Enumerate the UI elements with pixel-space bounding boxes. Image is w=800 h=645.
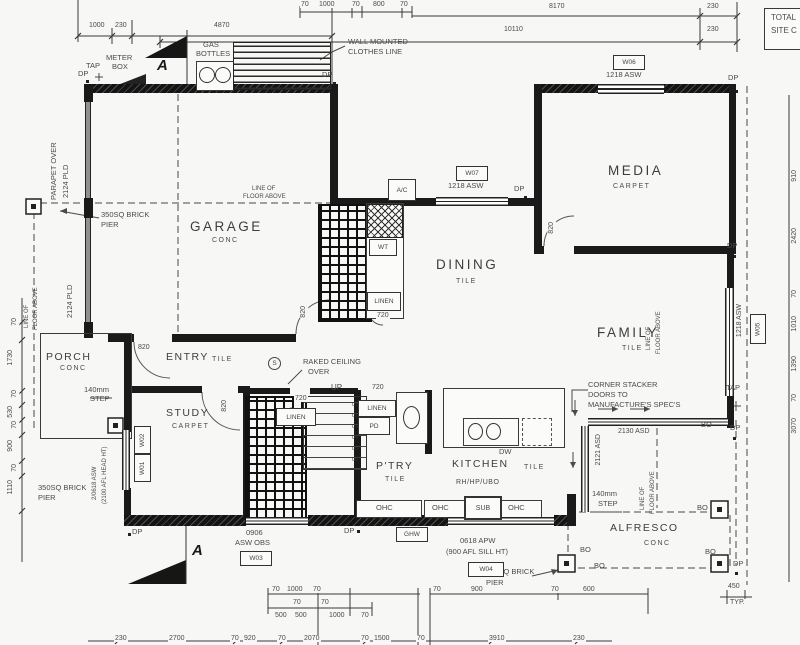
lofa-mid-1: LINE OF [252, 186, 275, 192]
dim-bb-5: 70 [360, 612, 370, 619]
plan-linework [0, 0, 800, 645]
smoke-alarm-symbol: S [268, 357, 281, 370]
stacker-doors-vertical [581, 426, 589, 512]
dim-left-7: 1110 [6, 480, 15, 495]
parapet-label-1: PARAPET OVER [50, 100, 58, 200]
tap-label-1: TAP [86, 62, 100, 70]
dim-top-8170: 8170 [548, 3, 566, 10]
ohc-label-3: OHC [508, 504, 525, 512]
dim-right-1: 2420 [790, 228, 799, 244]
door-820-media: 820 [547, 222, 556, 234]
section-marker-bottom: A [192, 543, 203, 559]
dim-left-0: 70 [10, 318, 19, 326]
kitchen-appliances: RH/HP/UBO [456, 479, 499, 486]
room-sub-kitchen: TILE [524, 464, 545, 471]
sub-label: SUB [464, 496, 502, 520]
dim-bc-10: 230 [572, 635, 586, 642]
wall-media-south [574, 246, 736, 254]
dw-label: DW [499, 448, 512, 456]
stacker-note-2: DOORS TO [588, 391, 628, 399]
clothesline-label-2: CLOTHES LINE [348, 48, 402, 56]
stacker-note-3: MANUFACTURE'S SPEC'S [588, 401, 680, 409]
dim-ba-0: 70 [271, 586, 281, 593]
dim-right-5: 70 [790, 394, 799, 402]
parapet-label-2: 2124 PLD [62, 112, 70, 198]
linen-lower: LINEN [276, 408, 316, 426]
clothesline-unit [233, 42, 331, 90]
dim-top-70b: 70 [351, 1, 361, 8]
w04-size: 0618 APW [460, 537, 495, 545]
dim-left-2: 70 [10, 390, 19, 398]
stacker-note-1: CORNER STACKER [588, 381, 657, 389]
dim-left-6: 70 [10, 464, 19, 472]
pier-label-2b: PIER [38, 494, 56, 502]
dim-bc-0: 230 [114, 635, 128, 642]
dim-right-6: 3070 [790, 418, 799, 434]
door-820-study: 820 [220, 400, 229, 412]
w03-type: ASW OBS [235, 539, 270, 547]
dim-top-1000: 1000 [88, 22, 106, 29]
dim-top-70c: 70 [399, 1, 409, 8]
pier-label-2a: 350SQ BRICK [38, 484, 86, 492]
dim-bc-4: 70 [277, 635, 287, 642]
room-sub-porch: CONC [60, 365, 87, 372]
pier-label-1b: PIER [101, 221, 119, 229]
dim-ba-4: 900 [470, 586, 484, 593]
room-sub-alfresco: CONC [644, 540, 671, 547]
dim-ba-3: 70 [432, 586, 442, 593]
dim-bb-2: 500 [294, 612, 308, 619]
lofa-family-1: LINE OF [646, 264, 652, 350]
dim-bc-8: 70 [416, 635, 426, 642]
door-820-garage: 820 [299, 306, 308, 318]
title-total: TOTAL [771, 14, 796, 22]
wall-west-corner [84, 84, 93, 102]
dim-bc-2: 70 [230, 635, 240, 642]
dp-label-5: DP [727, 242, 737, 250]
step-label-1b: STEP [90, 395, 110, 403]
step-label-2b: STEP [598, 500, 618, 508]
island-dashed-bay [522, 418, 552, 446]
window-w07 [436, 197, 508, 206]
window-tag-w04: W04 [468, 562, 504, 577]
window-w05 [725, 288, 734, 396]
clothesline-label-1: WALL MOUNTED [348, 38, 408, 46]
stair-up-label: UP [331, 384, 342, 392]
tread-06: 06 [352, 457, 358, 463]
window-size-w06: 1218 ASW [606, 71, 641, 79]
lofa-west-2: FLOOR ABOVE [33, 234, 39, 330]
dp-label-4: DP [514, 185, 524, 193]
dim-left-5: 900 [6, 440, 15, 452]
wt-cupboard: WT [369, 239, 397, 256]
ac-unit: A/C [388, 179, 416, 201]
dim-top-230b: 230 [706, 3, 720, 10]
dim-bc-6: 70 [360, 635, 370, 642]
window-w03 [246, 517, 308, 525]
room-label-porch: PORCH [46, 352, 91, 363]
lofa-alfresco-2: FLOOR ABOVE [650, 430, 656, 514]
gas-label-2: BOTTLES [196, 50, 230, 58]
ohc-label-2: OHC [432, 504, 449, 512]
pier-label-1a: 350SQ BRICK [101, 211, 149, 219]
door-820-entry: 820 [137, 344, 151, 351]
pier-label-3b: PIER [486, 579, 504, 587]
window-tag-w03: W03 [240, 551, 272, 566]
room-sub-media: CARPET [613, 183, 650, 190]
wall-study-north-left [124, 386, 202, 393]
window-size-w07: 1218 ASW [448, 182, 483, 190]
pld-label-2: 2124 PLD [66, 246, 74, 318]
wall-garage-east [330, 84, 338, 206]
ohc-label-1: OHC [376, 504, 393, 512]
dim-bc-7: 1500 [373, 635, 391, 642]
dim-bb-1: 500 [274, 612, 288, 619]
w04-note: (900 AFL SILL HT) [446, 548, 508, 556]
room-sub-study: CARPET [172, 423, 209, 430]
ghw-unit: GHW [396, 527, 428, 542]
dp-label-7: DP [344, 527, 354, 535]
dim-ba-2: 70 [312, 586, 322, 593]
linen-hall: LINEN [358, 400, 396, 417]
bo-label-1: BO [580, 546, 591, 554]
lofa-alfresco-1: LINE OF [640, 436, 646, 510]
bo-label-2: BO [594, 562, 605, 570]
linen-upper: LINEN [367, 292, 401, 311]
dim-bc-9: 3910 [488, 635, 506, 642]
wall-media-south-stub [534, 246, 544, 254]
raked-ceiling-label-1: RAKED CEILING [303, 358, 361, 366]
dim-ba-1: 1000 [286, 586, 304, 593]
gas-bottle-1 [199, 67, 215, 83]
meter-box-label-2: BOX [112, 63, 128, 71]
room-label-media: MEDIA [608, 164, 663, 178]
stacker-v-size: 2121 ASD [594, 434, 603, 466]
dim-left-3: 530 [6, 406, 15, 418]
wall-west-pier [84, 198, 93, 218]
dp-label-9: DP [733, 560, 743, 568]
garage-pld-door-2 [85, 218, 91, 322]
gas-label-1: GAS [203, 41, 219, 49]
tread-05: 05 [352, 446, 358, 452]
door-720-hall: 720 [294, 395, 308, 402]
room-label-entry: ENTRY [166, 352, 209, 363]
wall-media-east [729, 84, 736, 254]
room-label-garage: GARAGE [190, 220, 263, 234]
raked-ceiling-label-2: OVER [308, 368, 329, 376]
lofa-mid-2: FLOOR ABOVE [243, 194, 286, 200]
dim-bb-3: 70 [320, 599, 330, 606]
dim-top-230c: 230 [706, 26, 720, 33]
dim-right-3: 1010 [790, 316, 799, 332]
dim-bc-5: 2070 [303, 635, 321, 642]
room-sub-entry: TILE [212, 356, 233, 363]
wall-kitchen-se [567, 494, 576, 526]
dp-label-8: DP [730, 424, 740, 432]
dim-top-70a: 70 [300, 1, 310, 8]
title-site: SITE C [771, 27, 797, 35]
dim-right-2: 70 [790, 290, 799, 298]
study-window-size: 2/0618 ASW [92, 420, 98, 500]
bo-label-3: BO [697, 504, 708, 512]
bo-label-0: BO [701, 421, 712, 429]
lofa-west-1: LINE OF [24, 240, 30, 328]
dim-right-4: 1390 [790, 356, 799, 372]
door-720-linen: 720 [376, 312, 390, 319]
dp-label-2: DP [322, 71, 332, 79]
room-label-kitchen: KITCHEN [452, 459, 509, 470]
wall-family-east-upper [727, 254, 734, 288]
dp-label-3: DP [728, 74, 738, 82]
dim-ba-5: 70 [550, 586, 560, 593]
typ-label: TYP. [729, 599, 746, 606]
tread-04: 04 [352, 435, 358, 441]
room-label-dining: DINING [436, 258, 498, 272]
dim-bc-3: 920 [243, 635, 257, 642]
window-tag-w06: W06 [613, 55, 645, 70]
dim-top-1000b: 1000 [318, 1, 336, 8]
room-label-study: STUDY [166, 408, 209, 419]
room-sub-pantry: TILE [385, 476, 406, 483]
step-label-1a: 140mm [84, 386, 109, 394]
wall-hall-1 [250, 388, 290, 394]
dim-right-0: 910 [790, 170, 799, 182]
dim-top-4870: 4870 [213, 22, 231, 29]
sink-bowl-1 [468, 423, 483, 440]
room-sub-dining: TILE [456, 278, 477, 285]
sink-bowl-2 [486, 423, 501, 440]
stair-upper-flight [318, 204, 372, 322]
pd-label: PD [358, 417, 390, 435]
dim-top-230: 230 [114, 22, 128, 29]
window-w06 [598, 84, 664, 94]
bo-label-4: BO [705, 548, 716, 556]
wall-south-1 [124, 515, 246, 526]
dim-bb-0: 70 [292, 599, 302, 606]
window-tag-w05: W05 [750, 314, 766, 344]
study-window-note: (2100 AFL HEAD HT) [102, 412, 108, 504]
window-tag-w02: W02 [134, 426, 151, 454]
door-720-pd: 720 [371, 384, 385, 391]
room-label-pantry: P'TRY [376, 461, 413, 472]
lofa-family-2: FLOOR ABOVE [656, 258, 662, 354]
dim-left-1: 1730 [6, 350, 15, 366]
window-size-w05: 1218 ASW [735, 304, 744, 337]
floor-plan: 1000 230 4870 70 1000 70 800 70 8170 230… [0, 0, 800, 645]
dim-ba-6: 600 [582, 586, 596, 593]
wall-media-west [534, 84, 542, 254]
window-tag-w01: W01 [134, 454, 151, 482]
wall-entry-north-mid [172, 334, 296, 342]
dp-label-1: DP [78, 70, 88, 78]
section-marker-top: A [157, 58, 168, 74]
room-label-alfresco: ALFRESCO [610, 523, 679, 534]
gas-bottle-2 [215, 67, 231, 83]
garage-pld-door-1 [85, 102, 91, 198]
dim-top-10110: 10110 [503, 26, 524, 33]
typ-450: 450 [727, 583, 741, 590]
stacker-h-size: 2130 ASD [617, 428, 651, 435]
title-block: TOTAL SITE C [764, 8, 800, 50]
w03-size: 0906 [246, 529, 263, 537]
window-w01-w02 [122, 430, 130, 490]
dim-bb-4: 1000 [328, 612, 346, 619]
dim-top-800: 800 [372, 1, 386, 8]
dim-left-4: 70 [10, 421, 19, 429]
cabinet-hatch [367, 204, 403, 238]
dim-bc-1: 2700 [168, 635, 186, 642]
dp-label-6: DP [132, 528, 142, 536]
tap-label-2: TAP [726, 384, 740, 392]
room-sub-family: TILE [622, 345, 643, 352]
room-sub-garage: CONC [212, 237, 239, 244]
wc-fixture [403, 406, 420, 429]
window-tag-w07: W07 [456, 166, 488, 181]
meter-box-label-1: METER [106, 54, 132, 62]
step-label-2a: 140mm [592, 490, 617, 498]
